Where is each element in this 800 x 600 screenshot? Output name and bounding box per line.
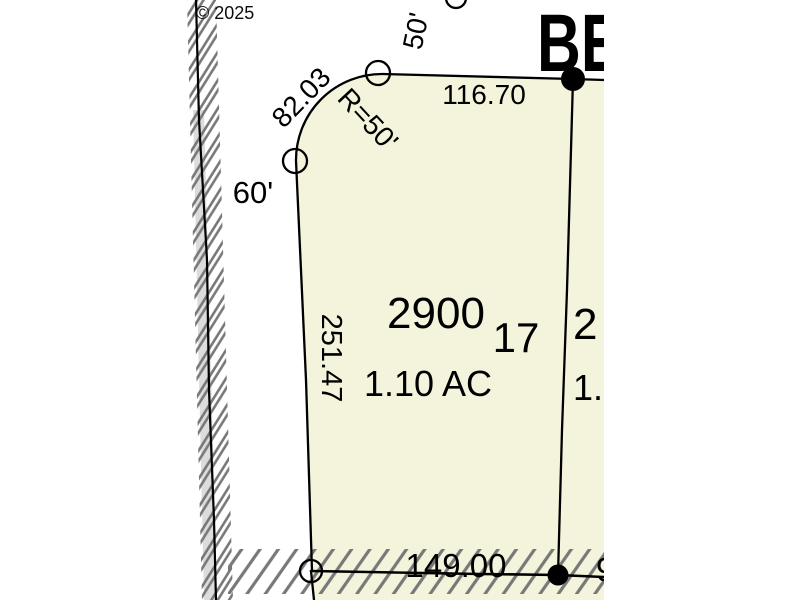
parcel-area-label: 1.10 AC bbox=[364, 363, 492, 404]
south-boundary-dimension: 149.00 bbox=[406, 547, 507, 584]
curve-endpoint-marker-west bbox=[283, 149, 307, 173]
street-half-width-label: 50' bbox=[397, 10, 435, 52]
corner-dot-southeast bbox=[548, 565, 569, 586]
corner-marker-southwest bbox=[300, 560, 322, 582]
street-marker-top bbox=[446, 0, 466, 8]
plat-map-viewport: © 2025 BE 50' 116.70 82.03 R=50' 60' 251… bbox=[0, 0, 800, 600]
road-hatching-left bbox=[187, 0, 233, 600]
street-name-label: BE bbox=[537, 0, 621, 89]
southeast-dimension-partial: 9 bbox=[596, 551, 614, 588]
west-boundary-dimension: 251.47 bbox=[315, 314, 347, 403]
copyright-label: © 2025 bbox=[196, 3, 254, 23]
adjacent-taxlot-number-partial[interactable]: 2 bbox=[573, 300, 597, 349]
taxlot-number-2900[interactable]: 2900 bbox=[387, 289, 485, 338]
curve-endpoint-marker-north bbox=[366, 61, 390, 85]
lot-number-17: 17 bbox=[493, 314, 540, 361]
north-boundary-dimension: 116.70 bbox=[442, 79, 526, 110]
plat-map: © 2025 BE 50' 116.70 82.03 R=50' 60' 251… bbox=[0, 0, 800, 600]
road-width-label: 60' bbox=[233, 175, 273, 210]
adjacent-parcel-area-partial: 1. bbox=[573, 367, 603, 408]
